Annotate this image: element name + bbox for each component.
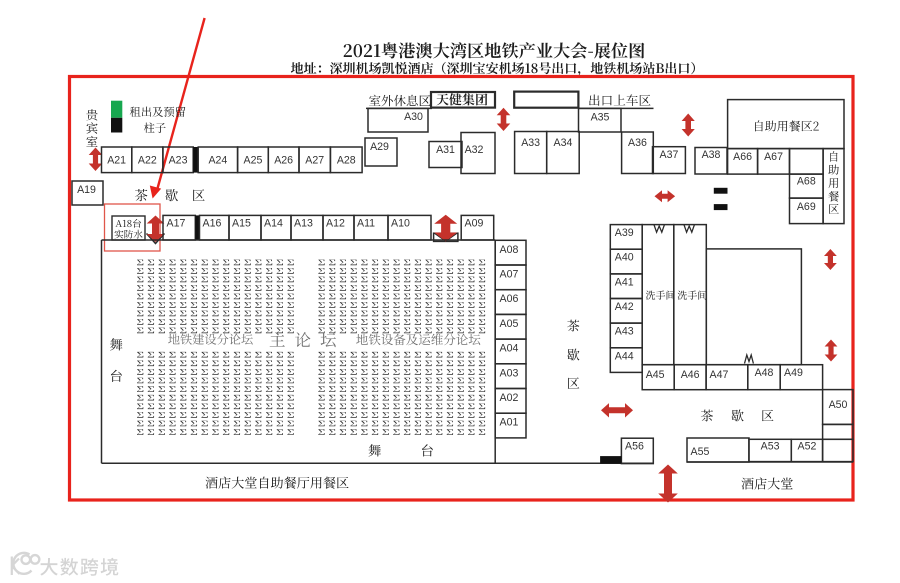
svg-text:A26: A26 (274, 154, 293, 166)
svg-text:A67: A67 (764, 151, 783, 163)
svg-text:A43: A43 (615, 326, 634, 338)
svg-text:A30: A30 (404, 111, 423, 123)
svg-text:A52: A52 (798, 440, 817, 452)
svg-text:A05: A05 (500, 318, 519, 330)
svg-text:A35: A35 (591, 112, 610, 124)
svg-text:A04: A04 (500, 343, 519, 355)
svg-text:A55: A55 (691, 446, 710, 458)
svg-text:A36: A36 (628, 137, 647, 149)
svg-text:A25: A25 (244, 154, 263, 166)
svg-text:A02: A02 (500, 392, 519, 404)
svg-text:A17: A17 (167, 218, 186, 230)
svg-text:A31: A31 (436, 144, 455, 156)
svg-text:A37: A37 (660, 149, 679, 161)
svg-text:A22: A22 (138, 154, 157, 166)
svg-text:A42: A42 (615, 301, 634, 313)
svg-text:A56: A56 (625, 441, 644, 453)
svg-text:A45: A45 (646, 369, 665, 381)
svg-text:A15: A15 (232, 218, 251, 230)
svg-text:A49: A49 (784, 367, 803, 379)
svg-text:A06: A06 (500, 293, 519, 305)
svg-text:A66: A66 (733, 151, 752, 163)
svg-text:A69: A69 (797, 201, 816, 213)
svg-text:A33: A33 (521, 137, 540, 149)
svg-text:A14: A14 (264, 218, 283, 230)
svg-text:A46: A46 (681, 369, 700, 381)
svg-text:A47: A47 (710, 369, 729, 381)
svg-text:A11: A11 (357, 218, 375, 230)
svg-text:A28: A28 (337, 154, 356, 166)
svg-text:A39: A39 (615, 227, 634, 239)
svg-text:A44: A44 (615, 350, 634, 362)
svg-text:A68: A68 (797, 176, 816, 188)
svg-text:A40: A40 (615, 252, 634, 264)
svg-text:A12: A12 (326, 218, 345, 230)
svg-text:A08: A08 (500, 244, 519, 256)
svg-text:A32: A32 (465, 144, 484, 156)
svg-text:A29: A29 (370, 141, 389, 153)
svg-text:A01: A01 (500, 417, 519, 429)
svg-text:A09: A09 (465, 218, 484, 230)
svg-text:A03: A03 (500, 367, 519, 379)
svg-text:A13: A13 (294, 218, 313, 230)
svg-text:A50: A50 (829, 399, 848, 411)
svg-text:A07: A07 (500, 269, 519, 281)
svg-text:A10: A10 (391, 218, 410, 230)
svg-text:A41: A41 (615, 276, 634, 288)
svg-text:A19: A19 (77, 184, 96, 196)
svg-text:A48: A48 (755, 367, 774, 379)
svg-text:A21: A21 (107, 154, 126, 166)
svg-text:A34: A34 (554, 137, 573, 149)
svg-text:A23: A23 (169, 154, 188, 166)
svg-text:A38: A38 (702, 149, 721, 161)
svg-text:A16: A16 (203, 218, 222, 230)
svg-text:A53: A53 (761, 440, 780, 452)
svg-text:A27: A27 (305, 154, 324, 166)
svg-text:A24: A24 (208, 154, 227, 166)
